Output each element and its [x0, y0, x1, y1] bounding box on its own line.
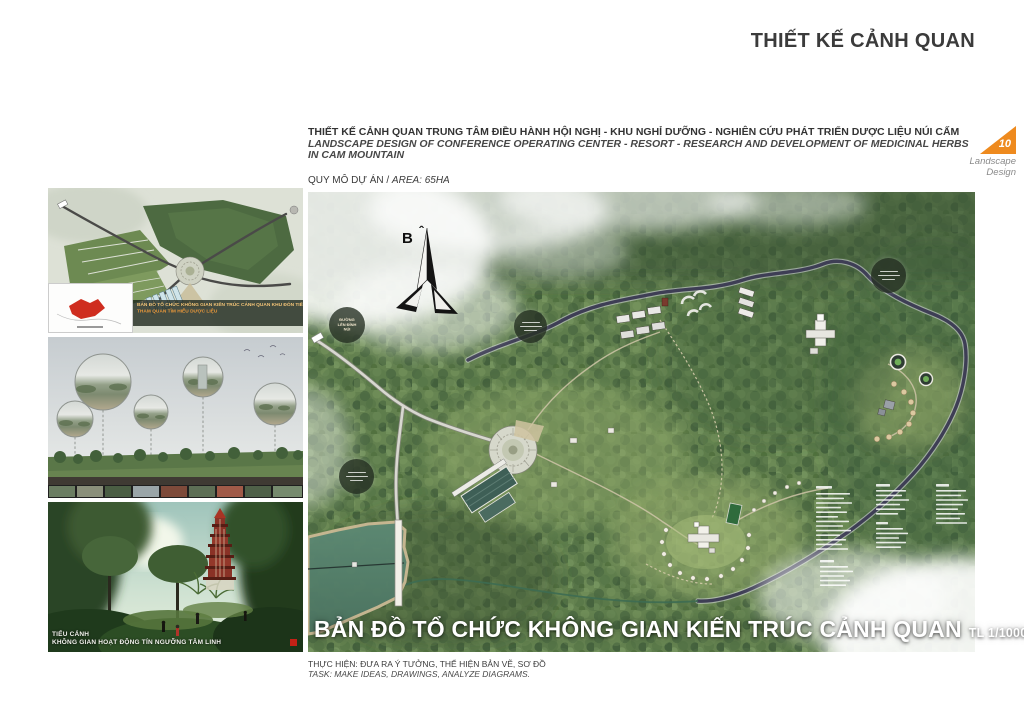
location-inset-graphic	[49, 284, 134, 333]
page-tab-label: Landscape Design	[946, 157, 1016, 178]
sidebar-figure-section	[48, 337, 303, 498]
red-marker	[290, 639, 297, 646]
pagoda-caption: TIỂU CẢNH KHÔNG GIAN HOẠT ĐỘNG TÍN NGƯỠN…	[52, 631, 221, 647]
section-graphic	[48, 337, 303, 498]
road-label-badge	[871, 258, 906, 293]
area-label-en: AREA: 65HA	[392, 175, 450, 186]
map-scale: TL 1/1000	[969, 626, 1024, 640]
sidebar-figure-siteplan: BẢN ĐỒ TỔ CHỨC KHÔNG GIAN KIẾN TRÚC CẢNH…	[48, 188, 303, 333]
pagoda-render-graphic	[48, 502, 303, 652]
siteplan-caption-line1: BẢN ĐỒ TỔ CHỨC KHÔNG GIAN KIẾN TRÚC CẢNH…	[137, 303, 299, 309]
task-note: THỰC HIỆN: ĐƯA RA Ý TƯỞNG, THỂ HIỆN BẢN …	[308, 659, 546, 679]
page-number: 10	[999, 138, 1011, 150]
road-label-badge	[339, 459, 374, 494]
master-plan-map	[308, 192, 975, 652]
project-title-en: LANDSCAPE DESIGN OF CONFERENCE OPERATING…	[308, 139, 980, 162]
location-inset-map	[48, 283, 133, 333]
map-title-text: BẢN ĐỒ TỔ CHỨC KHÔNG GIAN KIẾN TRÚC CẢNH…	[314, 616, 962, 642]
page-tab-label-line2: Design	[946, 168, 1016, 179]
pagoda-caption-line2: KHÔNG GIAN HOẠT ĐỘNG TÍN NGƯỠNG TÂM LINH	[52, 639, 221, 647]
task-note-vi: THỰC HIỆN: ĐƯA RA Ý TƯỞNG, THỂ HIỆN BẢN …	[308, 659, 546, 669]
project-title-vi: THIẾT KẾ CẢNH QUAN TRUNG TÂM ĐIỀU HÀNH H…	[308, 127, 980, 139]
road-label-badge-mountain-road: ĐƯỜNG LÊN ĐỈNH NÚI	[329, 307, 365, 343]
area-label-vi: QUY MÔ DỰ ÁN /	[308, 175, 392, 186]
road-label-badge	[514, 310, 547, 343]
pagoda-caption-line1: TIỂU CẢNH	[52, 631, 221, 639]
compass-label: B	[402, 230, 413, 247]
compass-hat-mark: ˆ	[419, 223, 424, 239]
project-header: THIẾT KẾ CẢNH QUAN TRUNG TÂM ĐIỀU HÀNH H…	[308, 127, 980, 186]
task-note-en: TASK: MAKE IDEAS, DRAWINGS, ANALYZE DIAG…	[308, 669, 546, 679]
project-area: QUY MÔ DỰ ÁN / AREA: 65HA	[308, 175, 980, 186]
siteplan-caption: BẢN ĐỒ TỔ CHỨC KHÔNG GIAN KIẾN TRÚC CẢNH…	[133, 300, 303, 326]
master-plan-graphic	[308, 192, 975, 652]
portfolio-page: { "page_title": "THIẾT KẾ CẢNH QUAN", "h…	[0, 0, 1024, 724]
map-title: BẢN ĐỒ TỔ CHỨC KHÔNG GIAN KIẾN TRÚC CẢNH…	[314, 616, 1024, 643]
sidebar-figure-pagoda: TIỂU CẢNH KHÔNG GIAN HOẠT ĐỘNG TÍN NGƯỠN…	[48, 502, 303, 652]
siteplan-caption-line2: THAM QUAN TÌM HIỂU DƯỢC LIỆU	[137, 309, 299, 315]
page-tab-label-line1: Landscape	[946, 157, 1016, 168]
road-label-text: ĐƯỜNG LÊN ĐỈNH NÚI	[335, 318, 359, 332]
page-title: THIẾT KẾ CẢNH QUAN	[751, 30, 975, 53]
